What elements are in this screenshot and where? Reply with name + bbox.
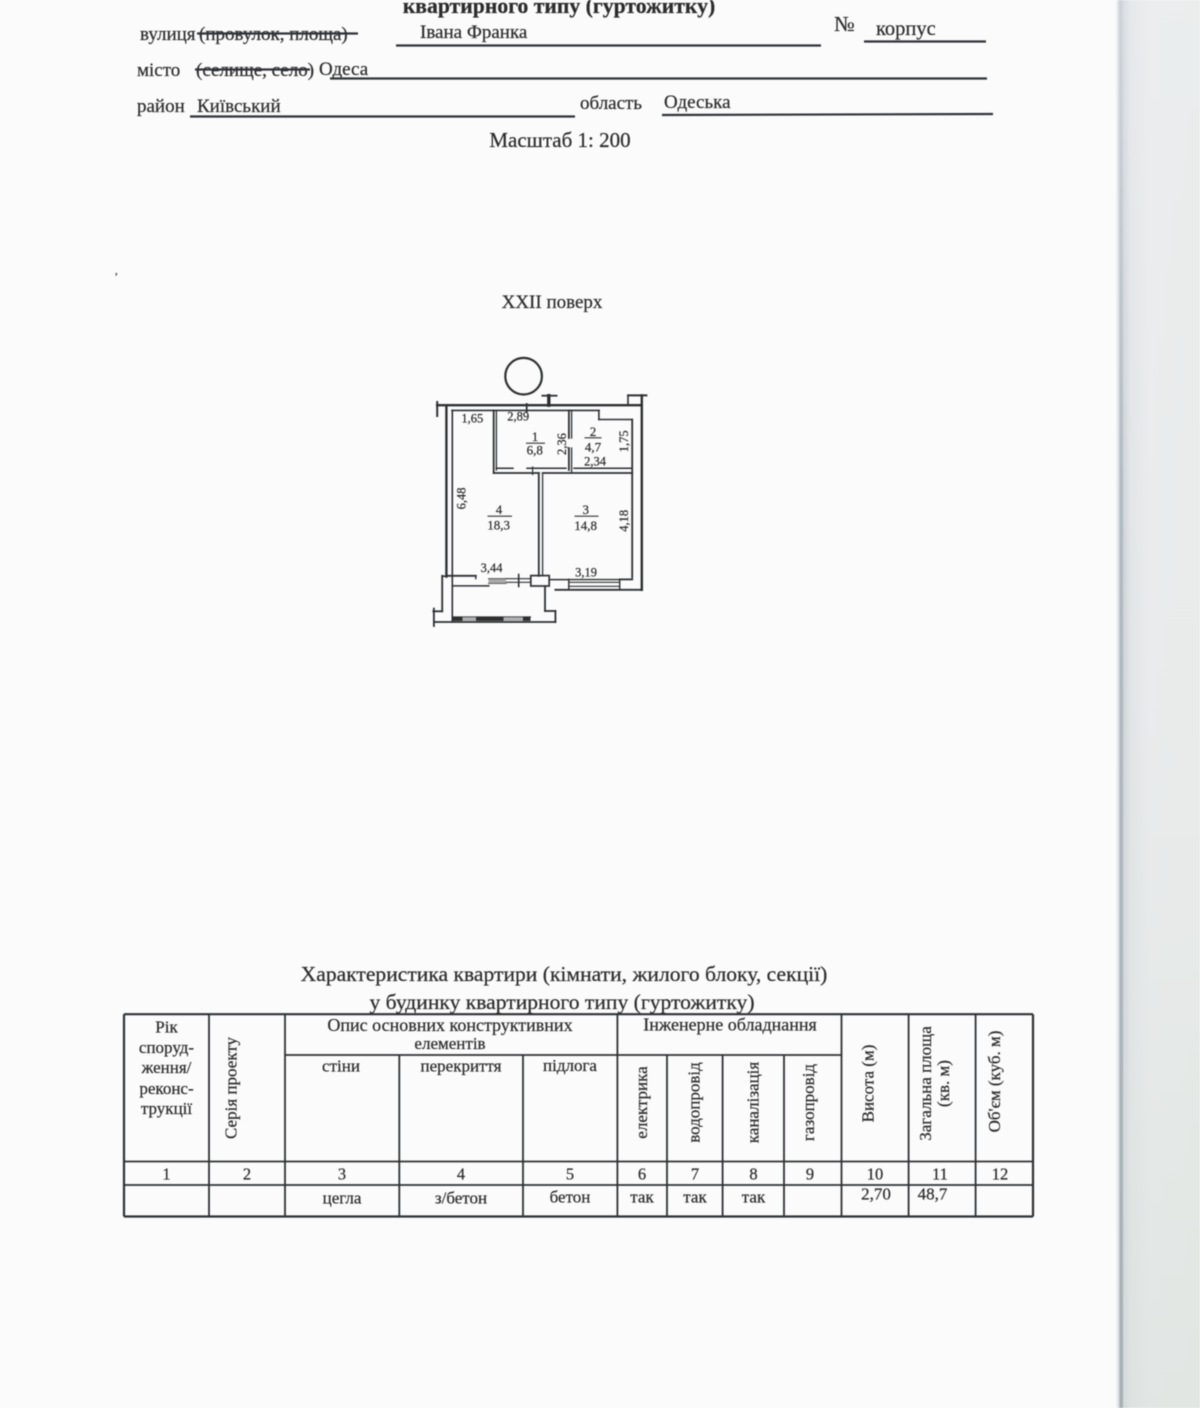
svg-text:Рік: Рік	[155, 1017, 178, 1036]
svg-text:трукції: трукції	[141, 1099, 192, 1118]
svg-text:бетон: бетон	[550, 1188, 591, 1207]
svg-text:3: 3	[338, 1165, 346, 1184]
svg-text:Масштаб 1: 200: Масштаб 1: 200	[489, 128, 630, 152]
svg-text:Серія проекту: Серія проекту	[222, 1037, 241, 1139]
svg-text:12: 12	[992, 1165, 1009, 1184]
svg-text:район: район	[137, 96, 185, 117]
svg-text:2,36: 2,36	[555, 433, 569, 455]
svg-text:Об'єм (куб. м): Об'єм (куб. м)	[985, 1031, 1004, 1133]
svg-text:корпус: корпус	[876, 18, 936, 40]
svg-text:так: так	[630, 1188, 654, 1207]
svg-text:3: 3	[583, 502, 590, 517]
svg-text:4,7: 4,7	[585, 439, 602, 454]
svg-text:2: 2	[590, 424, 597, 439]
svg-text:газопровід: газопровід	[799, 1064, 818, 1141]
svg-text:1,65: 1,65	[461, 412, 483, 426]
svg-text:каналізація: каналізація	[744, 1062, 763, 1144]
svg-text:2,34: 2,34	[584, 455, 607, 469]
svg-text:цегла: цегла	[323, 1189, 362, 1208]
svg-text:Характеристика квартири (кімна: Характеристика квартири (кімнати, жилого…	[301, 962, 828, 986]
svg-text:5: 5	[566, 1165, 574, 1184]
svg-text:1,75: 1,75	[617, 430, 631, 452]
svg-text:Одеська: Одеська	[664, 92, 731, 113]
svg-text:Київський: Київський	[197, 96, 281, 117]
svg-text:3,19: 3,19	[575, 566, 597, 580]
svg-text:область: область	[580, 93, 642, 114]
svg-text:електрика: електрика	[632, 1066, 651, 1139]
svg-text:Івана Франка: Івана Франка	[420, 22, 528, 43]
svg-text:Загальна площа: Загальна площа	[916, 1026, 935, 1141]
svg-text:підлога: підлога	[543, 1056, 597, 1075]
svg-text:Висота (м): Висота (м)	[859, 1045, 878, 1123]
svg-text:так: так	[742, 1188, 766, 1207]
svg-text:Опис основних конструктивних: Опис основних конструктивних	[327, 1015, 572, 1035]
svg-text:4: 4	[457, 1165, 465, 1184]
svg-text:стіни: стіни	[322, 1057, 360, 1076]
svg-text:споруд-: споруд-	[139, 1038, 194, 1057]
svg-text:вулиця: вулиця	[140, 24, 196, 45]
svg-text:елементів: елементів	[414, 1034, 485, 1053]
svg-text:квартирного типу (гуртожитку): квартирного типу (гуртожитку)	[403, 0, 715, 18]
svg-text:так: так	[683, 1188, 707, 1207]
svg-text:2,89: 2,89	[507, 410, 529, 424]
svg-text:водопровід: водопровід	[685, 1062, 704, 1143]
svg-text:3,44: 3,44	[481, 561, 504, 575]
svg-text:9: 9	[806, 1165, 814, 1184]
svg-text:у будинку квартирного типу (гу: у будинку квартирного типу (гуртожитку)	[369, 990, 754, 1014]
svg-text:6,8: 6,8	[527, 443, 543, 458]
svg-text:№: №	[834, 12, 855, 36]
svg-text:6,48: 6,48	[454, 487, 468, 509]
svg-text:4: 4	[496, 502, 503, 517]
svg-text:XXII поверх: XXII поверх	[502, 292, 603, 313]
svg-text:з/бетон: з/бетон	[435, 1189, 487, 1208]
svg-text:14,8: 14,8	[574, 518, 597, 533]
svg-text:перекриття: перекриття	[421, 1057, 502, 1076]
svg-text:1: 1	[162, 1165, 170, 1184]
svg-text:місто: місто	[137, 60, 180, 81]
svg-text:(кв. м): (кв. м)	[934, 1060, 953, 1107]
svg-text:4,18: 4,18	[617, 510, 631, 532]
svg-text:18,3: 18,3	[487, 518, 510, 533]
svg-text:,: ,	[115, 265, 118, 277]
svg-text:48,7: 48,7	[918, 1185, 948, 1204]
svg-text:11: 11	[932, 1165, 948, 1184]
svg-text:7: 7	[691, 1165, 699, 1184]
svg-text:реконс-: реконс-	[139, 1079, 194, 1098]
svg-text:8: 8	[749, 1165, 757, 1184]
svg-text:Одеса: Одеса	[319, 59, 369, 80]
svg-text:2,70: 2,70	[861, 1185, 891, 1204]
svg-text:10: 10	[867, 1165, 884, 1184]
svg-text:6: 6	[638, 1165, 646, 1184]
svg-text:2: 2	[243, 1165, 251, 1184]
svg-text:Інженерне обладнання: Інженерне обладнання	[643, 1015, 817, 1035]
svg-text:ження/: ження/	[141, 1058, 192, 1077]
